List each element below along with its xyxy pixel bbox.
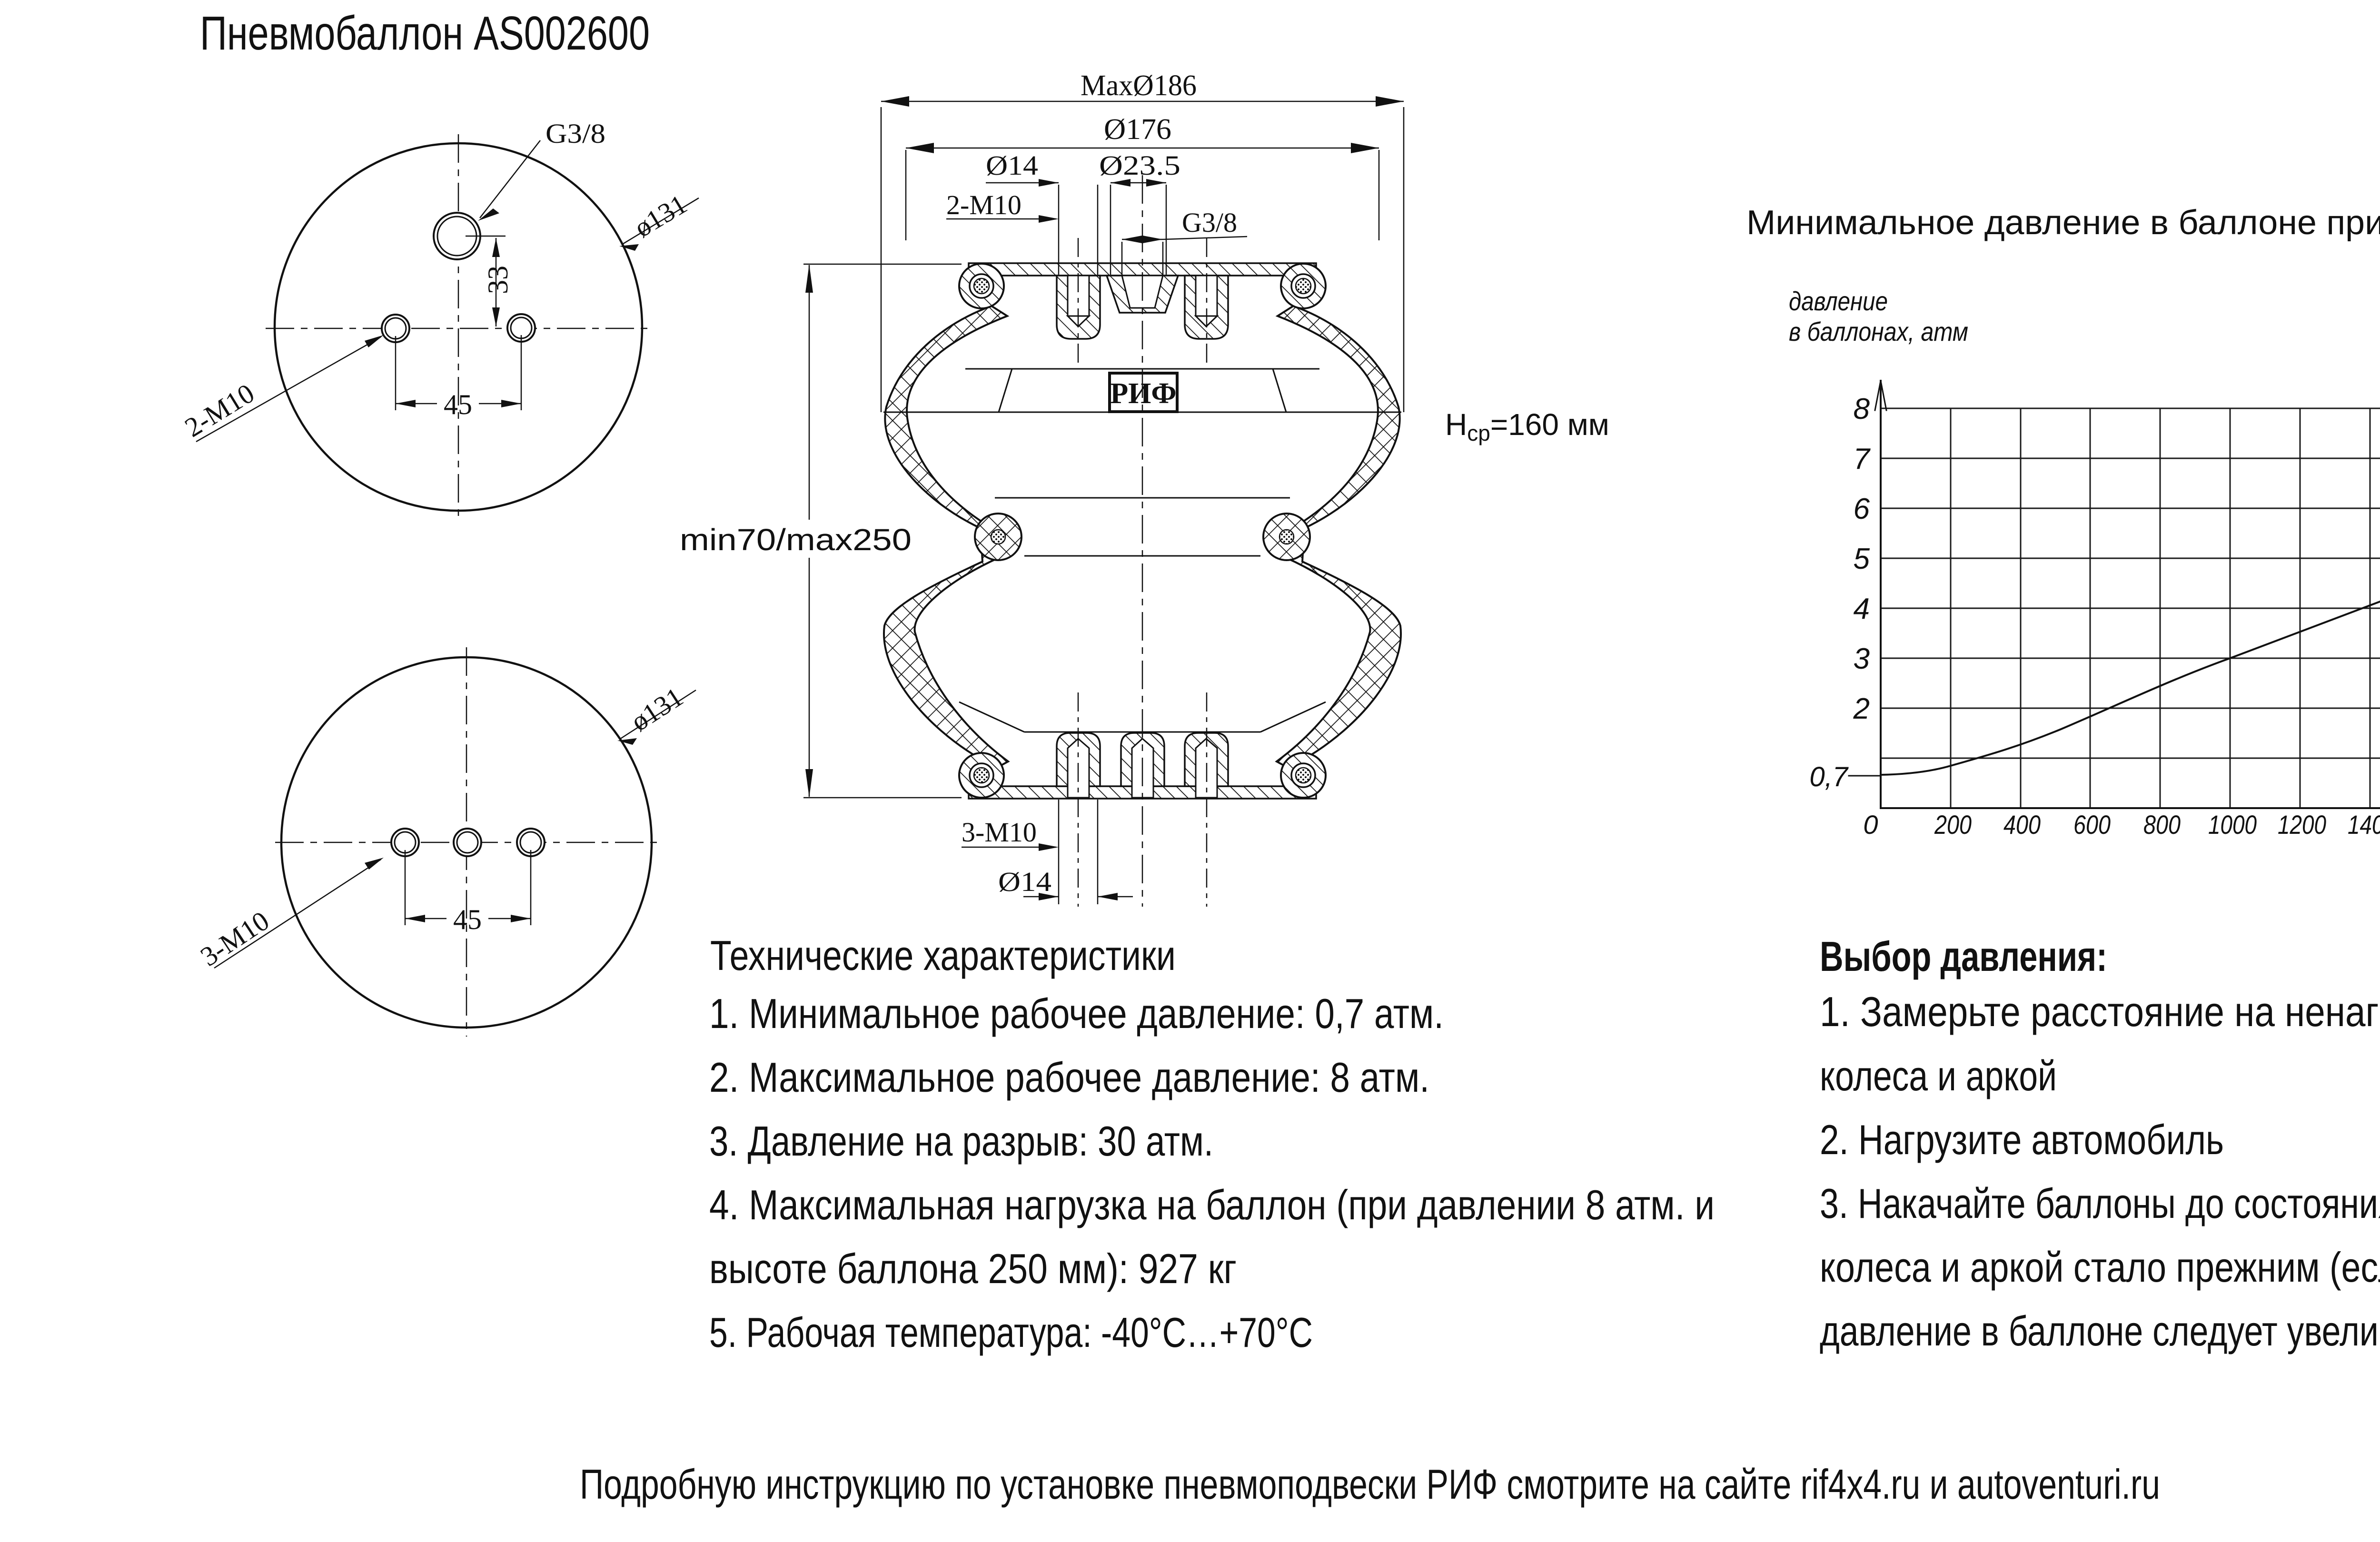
svg-text:давление в баллоне следует уве: давление в баллоне следует увеличить) xyxy=(1820,1307,2380,1354)
svg-text:45: 45 xyxy=(453,904,482,935)
svg-text:РИФ: РИФ xyxy=(1110,377,1176,410)
svg-text:1. Замерьте расстояние на нена: 1. Замерьте расстояние на ненагруженном … xyxy=(1820,988,2380,1035)
svg-text:в баллонах, атм: в баллонах, атм xyxy=(1789,316,1968,346)
svg-text:3: 3 xyxy=(1854,642,1870,675)
svg-text:3. Давление на разрыв: 30 атм.: 3. Давление на разрыв: 30 атм. xyxy=(709,1117,1213,1165)
svg-text:3. Накачайте баллоны до состоя: 3. Накачайте баллоны до состояния, чтобы… xyxy=(1820,1180,2380,1227)
svg-text:Ø176: Ø176 xyxy=(1104,113,1171,146)
svg-text:2. Нагрузите автомобиль: 2. Нагрузите автомобиль xyxy=(1820,1116,2224,1163)
svg-text:Ø14: Ø14 xyxy=(986,150,1038,181)
svg-text:0: 0 xyxy=(1863,810,1878,840)
svg-text:Подробную инструкцию по устано: Подробную инструкцию по установке пневмо… xyxy=(580,1461,2160,1508)
svg-text:min70/max250: min70/max250 xyxy=(680,523,912,557)
svg-text:Пневмобаллон AS002600: Пневмобаллон AS002600 xyxy=(200,7,650,60)
svg-text:2. Максимальное рабочее давлен: 2. Максимальное рабочее давление: 8 атм. xyxy=(709,1054,1429,1101)
svg-text:0,7: 0,7 xyxy=(1809,761,1849,792)
svg-text:MaxØ186: MaxØ186 xyxy=(1081,69,1197,102)
svg-text:400: 400 xyxy=(2003,810,2041,840)
svg-text:4. Максимальная нагрузка на ба: 4. Максимальная нагрузка на баллон (при … xyxy=(709,1181,1715,1228)
svg-text:давление: давление xyxy=(1789,286,1888,316)
svg-text:Минимальное давление в баллоне: Минимальное давление в баллоне при нагру… xyxy=(1746,204,2380,242)
svg-text:5: 5 xyxy=(1854,543,1870,575)
svg-text:G3/8: G3/8 xyxy=(1182,207,1237,238)
svg-text:1000: 1000 xyxy=(2208,810,2257,840)
svg-text:1. Минимальное рабочее давлени: 1. Минимальное рабочее давление: 0,7 атм… xyxy=(709,990,1444,1037)
svg-text:200: 200 xyxy=(1934,810,1972,840)
svg-text:2-M10: 2-M10 xyxy=(946,189,1021,220)
svg-text:7: 7 xyxy=(1854,443,1871,475)
svg-text:1400: 1400 xyxy=(2348,810,2380,840)
svg-text:Ø23.5: Ø23.5 xyxy=(1099,150,1180,181)
svg-text:1200: 1200 xyxy=(2278,810,2326,840)
svg-text:G3/8: G3/8 xyxy=(545,118,605,149)
svg-text:600: 600 xyxy=(2073,810,2111,840)
svg-text:800: 800 xyxy=(2143,810,2181,840)
svg-text:33: 33 xyxy=(482,266,514,294)
svg-text:8: 8 xyxy=(1854,393,1870,425)
svg-text:2: 2 xyxy=(1853,692,1870,725)
svg-text:Ø14: Ø14 xyxy=(998,866,1051,897)
svg-text:колеса и аркой: колеса и аркой xyxy=(1820,1052,2057,1099)
svg-text:45: 45 xyxy=(444,389,472,420)
svg-text:6: 6 xyxy=(1854,493,1870,525)
svg-text:5. Рабочая температура: -40°C…: 5. Рабочая температура: -40°C…+70°C xyxy=(709,1309,1313,1356)
svg-text:4: 4 xyxy=(1854,593,1870,625)
svg-text:колеса и аркой стало прежним (: колеса и аркой стало прежним (если Вы хо… xyxy=(1820,1244,2380,1291)
svg-text:высоте баллона 250 мм): 927 кг: высоте баллона 250 мм): 927 кг xyxy=(709,1245,1237,1292)
svg-text:Технические характеристики: Технические характеристики xyxy=(710,932,1176,979)
svg-text:3-M10: 3-M10 xyxy=(962,817,1037,848)
svg-text:Выбор давления:: Выбор давления: xyxy=(1820,933,2107,980)
